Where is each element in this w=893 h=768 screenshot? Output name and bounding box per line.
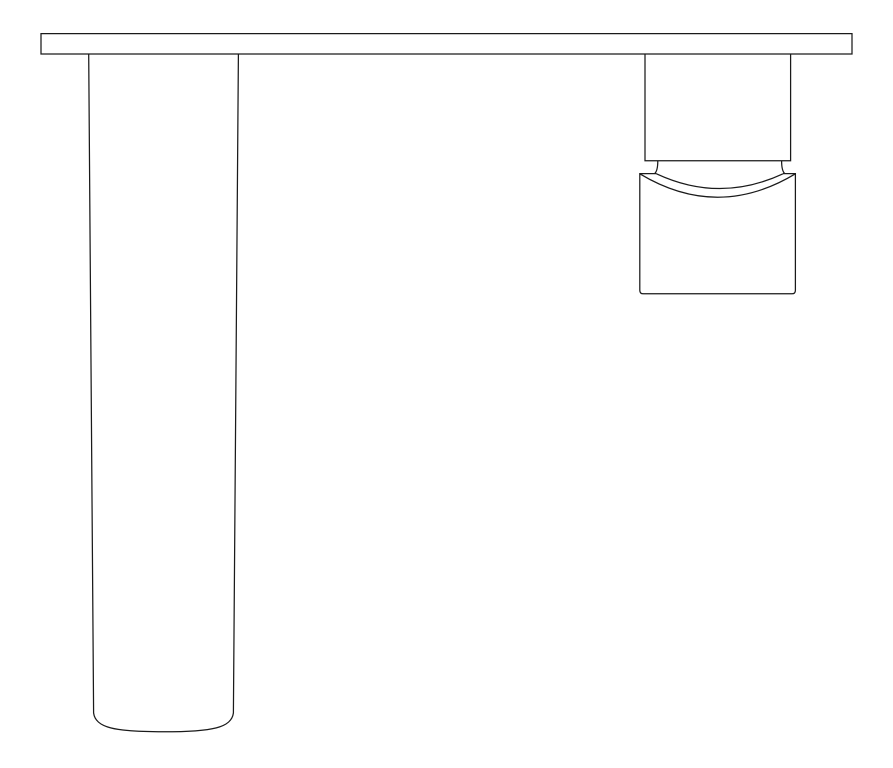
handle-base-outline — [645, 54, 791, 161]
handle-neck-right-line — [782, 161, 785, 174]
spout-body-outline — [89, 54, 239, 732]
wall-plate-outline — [41, 34, 852, 54]
handle-neck-left-line — [655, 161, 658, 174]
drawing-canvas — [0, 0, 893, 768]
handle-knob-upper-arc — [657, 174, 784, 189]
tap-line-drawing — [0, 0, 893, 768]
handle-knob-outline — [640, 174, 796, 294]
